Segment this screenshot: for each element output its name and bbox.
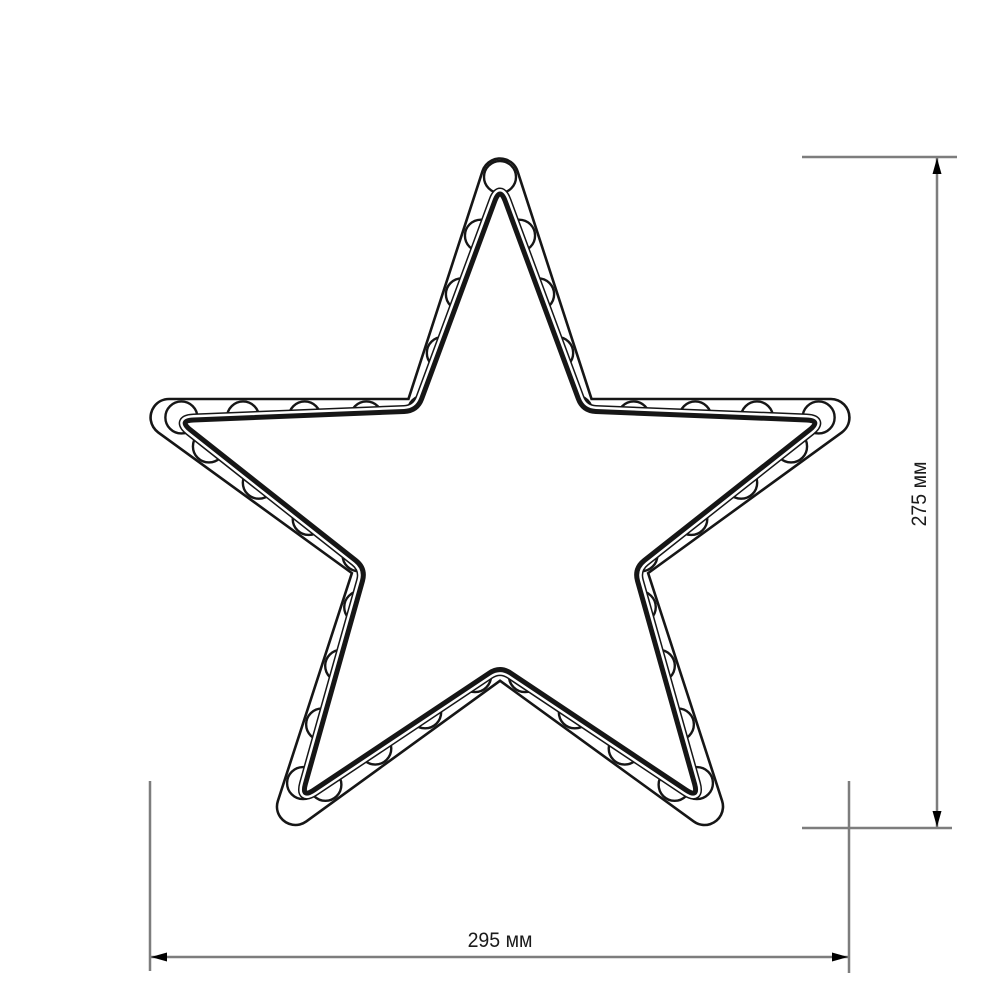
drawing-canvas: 295 мм 275 мм (0, 0, 1000, 1000)
height-dimension-label: 275 мм (908, 420, 932, 569)
tube-interior-fill (185, 194, 815, 793)
star-technical-drawing (0, 0, 1000, 1000)
width-dimension-label: 295 мм (426, 929, 575, 953)
height-arrow-bottom (933, 811, 942, 827)
height-arrow-top (933, 158, 942, 174)
width-arrow-left (151, 953, 167, 962)
width-arrow-right (832, 953, 848, 962)
